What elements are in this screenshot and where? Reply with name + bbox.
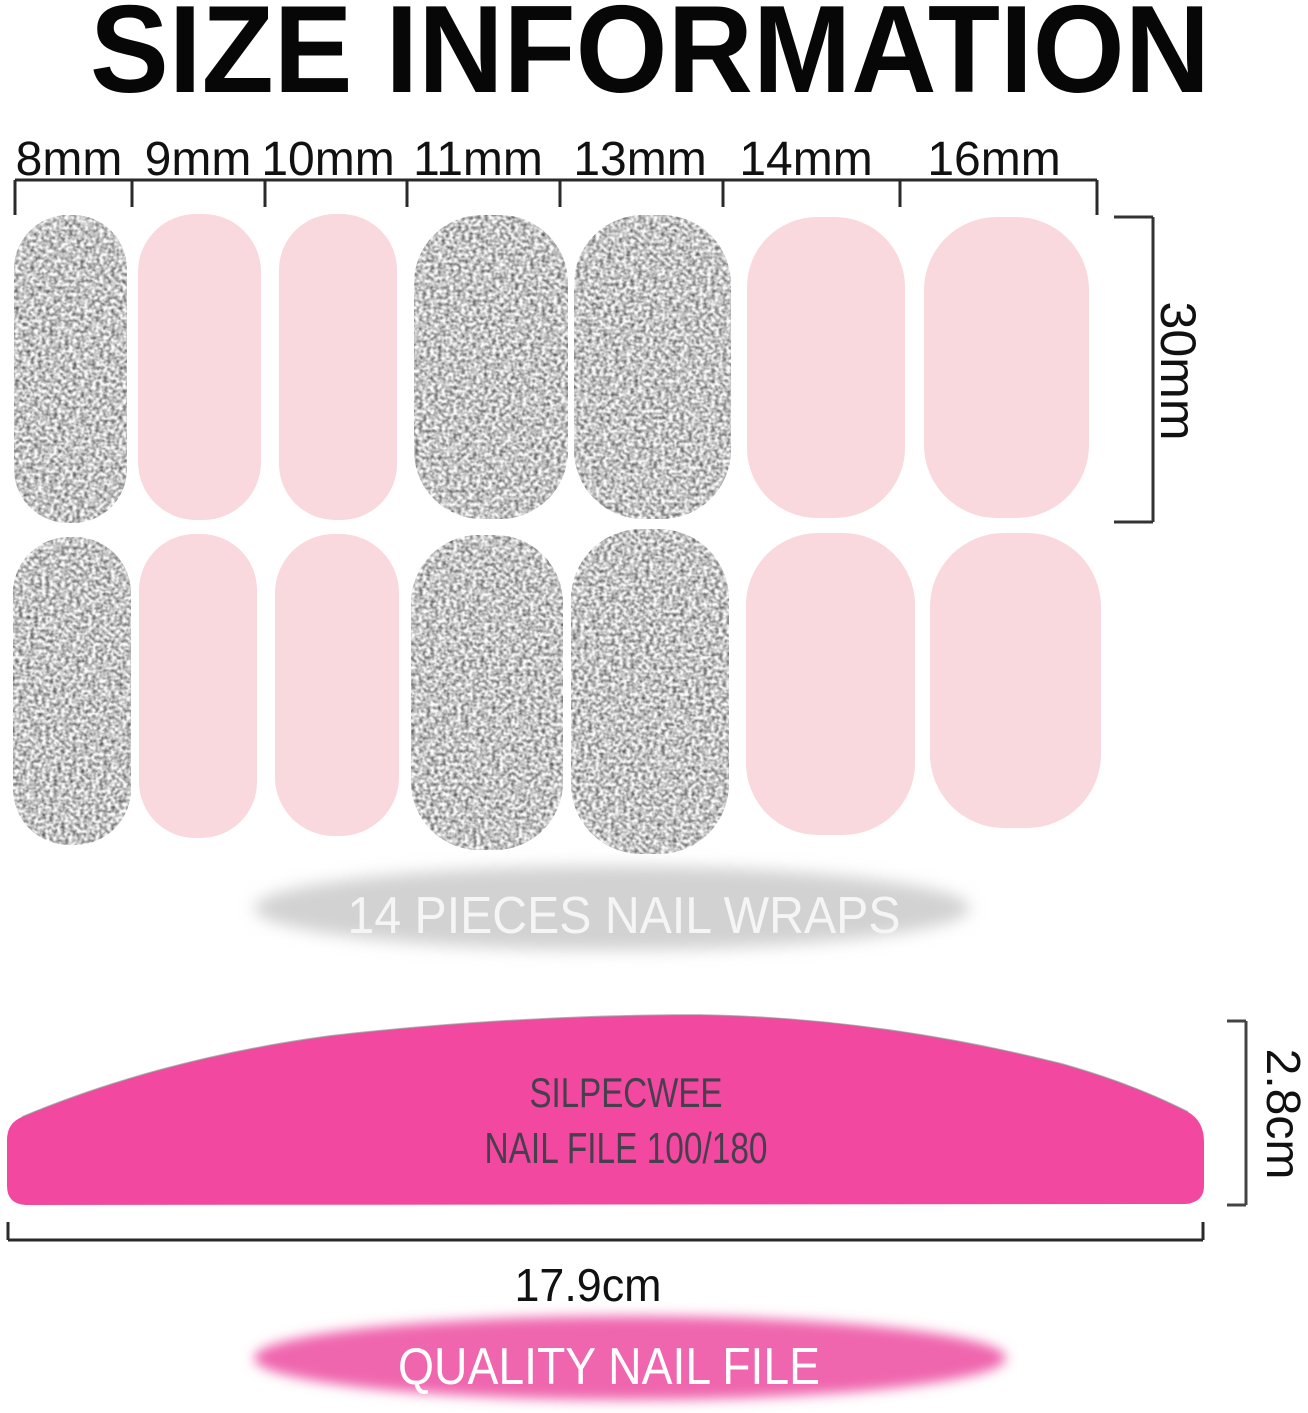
svg-text:13mm: 13mm	[573, 133, 706, 186]
svg-text:QUALITY NAIL FILE: QUALITY NAIL FILE	[398, 1338, 820, 1396]
svg-text:NAIL FILE 100/180: NAIL FILE 100/180	[485, 1124, 768, 1173]
svg-text:SIZE INFORMATION: SIZE INFORMATION	[90, 0, 1210, 119]
svg-text:14 PIECES NAIL WRAPS: 14 PIECES NAIL WRAPS	[348, 887, 901, 945]
svg-text:SILPECWEE: SILPECWEE	[530, 1069, 723, 1116]
svg-text:2.8cm: 2.8cm	[1256, 1049, 1308, 1180]
svg-text:16mm: 16mm	[927, 133, 1060, 186]
svg-text:10mm: 10mm	[261, 133, 394, 186]
svg-text:9mm: 9mm	[145, 133, 252, 186]
svg-text:14mm: 14mm	[739, 133, 872, 186]
svg-text:30mm: 30mm	[1150, 302, 1206, 441]
svg-text:11mm: 11mm	[413, 133, 543, 186]
svg-text:17.9cm: 17.9cm	[515, 1259, 662, 1311]
svg-text:8mm: 8mm	[16, 133, 123, 186]
